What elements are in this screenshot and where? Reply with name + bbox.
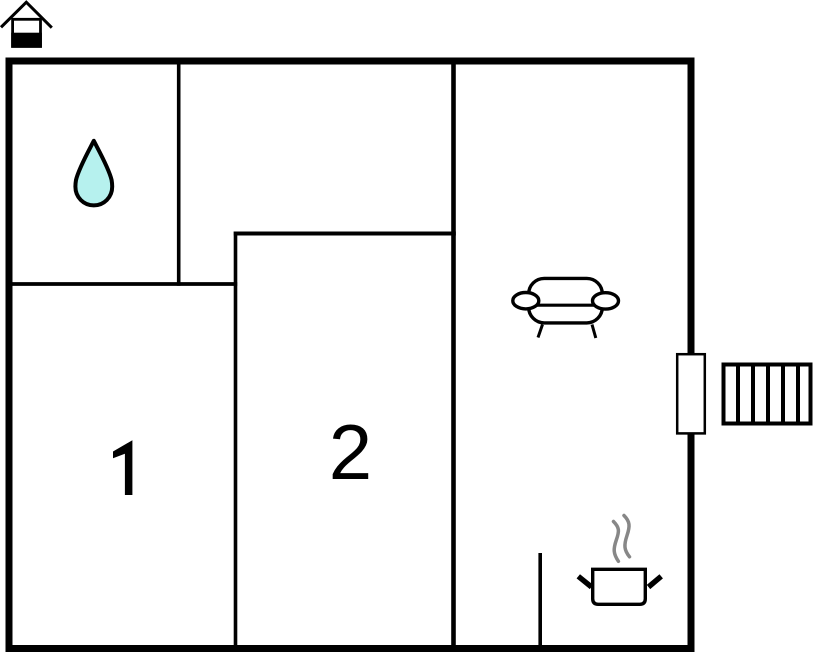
svg-text:2: 2 — [329, 408, 372, 496]
